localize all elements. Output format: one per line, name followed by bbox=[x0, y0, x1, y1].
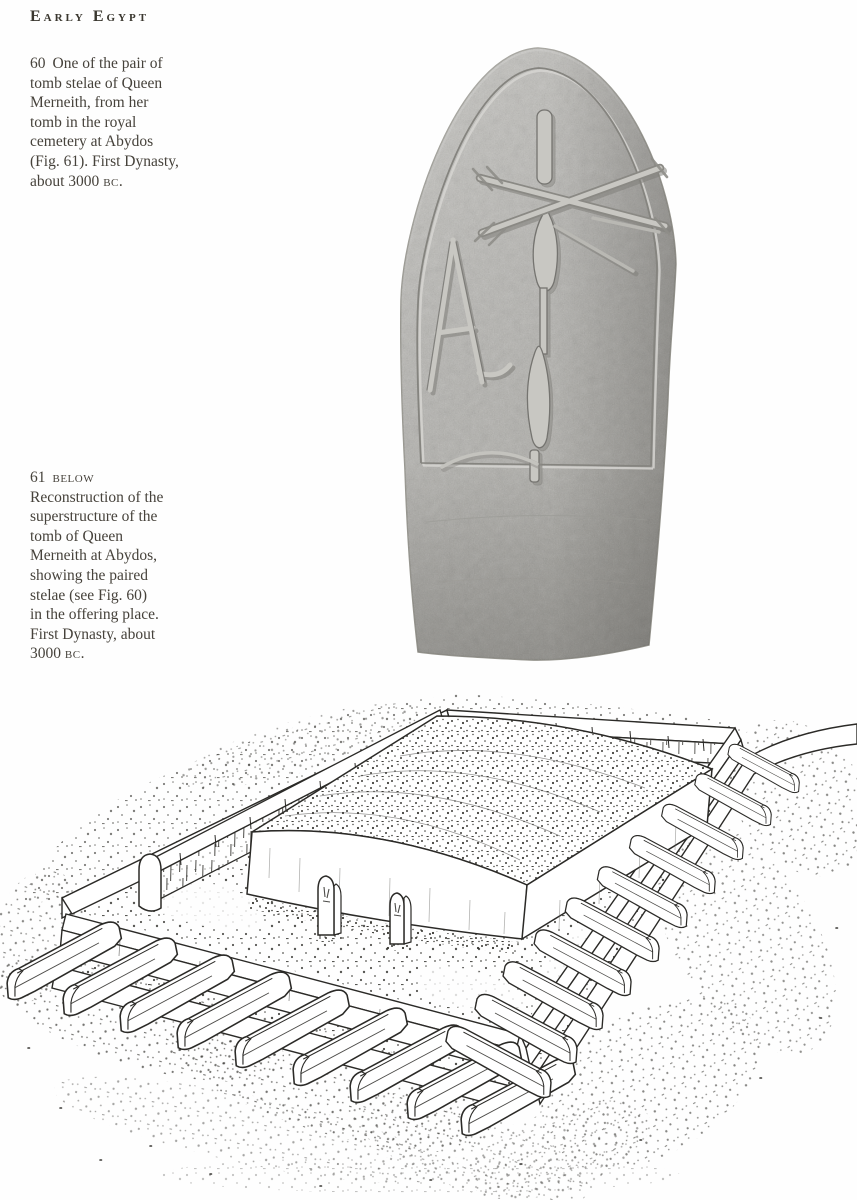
figure-number: 61 bbox=[30, 469, 46, 486]
caption-line: Merneith at Abydos, bbox=[30, 546, 255, 566]
caption-line: tomb stelae of Queen bbox=[30, 74, 255, 94]
book-page: Early Egypt 60One of the pair of tomb st… bbox=[0, 0, 857, 1200]
caption-line: cemetery at Abydos bbox=[30, 132, 255, 152]
position-label: below bbox=[53, 469, 95, 486]
caption-line: in the offering place. bbox=[30, 605, 255, 625]
caption-text: 3000 bbox=[30, 645, 65, 662]
caption-line: Reconstruction of the bbox=[30, 488, 255, 508]
page-header: Early Egypt bbox=[30, 8, 149, 26]
caption-line: 3000 bc. bbox=[30, 644, 255, 664]
caption-line: superstructure of the bbox=[30, 507, 255, 527]
caption-text: . bbox=[119, 173, 123, 190]
caption-text: about 3000 bbox=[30, 173, 103, 190]
figure-number: 60 bbox=[30, 55, 46, 72]
stela-photograph bbox=[397, 42, 682, 674]
caption-line: about 3000 bc. bbox=[30, 172, 255, 192]
caption-line: Merneith, from her bbox=[30, 93, 255, 113]
caption-line: First Dynasty, about bbox=[30, 625, 255, 645]
caption-line: tomb in the royal bbox=[30, 113, 255, 133]
caption-line: stelae (see Fig. 60) bbox=[30, 586, 255, 606]
caption-text: One of the pair of bbox=[53, 55, 163, 72]
caption-text: . bbox=[81, 645, 85, 662]
caption-line: (Fig. 61). First Dynasty, bbox=[30, 152, 255, 172]
caption-line: showing the paired bbox=[30, 566, 255, 586]
tomb-reconstruction-drawing bbox=[0, 688, 857, 1200]
caption-line: 61below bbox=[30, 468, 255, 488]
caption-line: tomb of Queen bbox=[30, 527, 255, 547]
era-label: bc bbox=[103, 173, 119, 190]
era-label: bc bbox=[65, 645, 81, 662]
caption-fig60: 60One of the pair of tomb stelae of Quee… bbox=[30, 54, 255, 191]
caption-line: 60One of the pair of bbox=[30, 54, 255, 74]
caption-fig61: 61below Reconstruction of the superstruc… bbox=[30, 468, 255, 664]
